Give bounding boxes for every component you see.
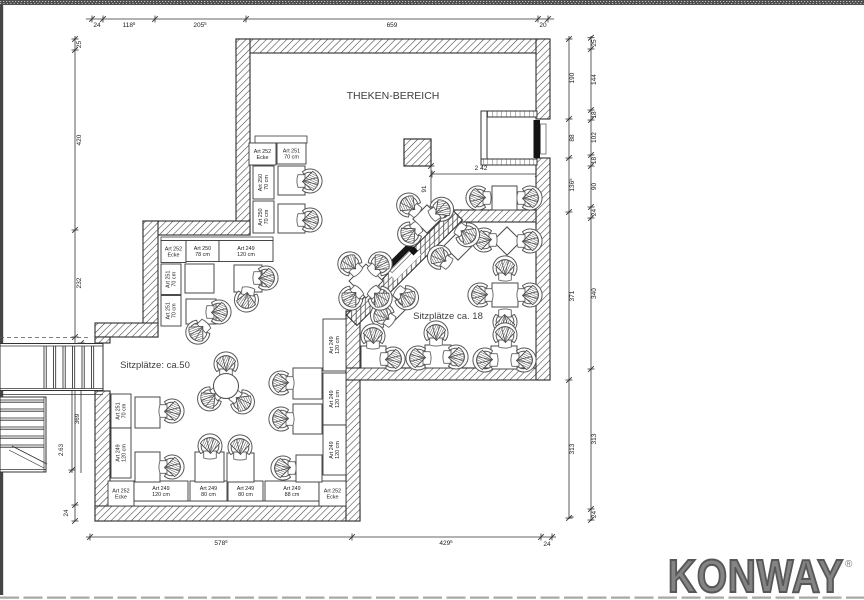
svg-text:25: 25 xyxy=(591,39,598,47)
svg-text:88 cm: 88 cm xyxy=(285,492,300,498)
svg-text:120 cm: 120 cm xyxy=(152,492,170,498)
svg-text:Art 249: Art 249 xyxy=(237,486,254,492)
svg-text:313: 313 xyxy=(591,433,598,444)
svg-text:Ecke: Ecke xyxy=(168,253,180,259)
svg-text:313: 313 xyxy=(569,443,576,454)
svg-text:24: 24 xyxy=(591,511,598,519)
svg-text:80 cm: 80 cm xyxy=(201,492,216,498)
svg-text:Art 252: Art 252 xyxy=(254,149,271,155)
svg-text:90: 90 xyxy=(591,183,598,191)
svg-text:Art 249: Art 249 xyxy=(152,486,169,492)
svg-text:78 cm: 78 cm xyxy=(195,252,210,258)
svg-text:2.63: 2.63 xyxy=(58,443,65,456)
svg-text:Sitzplätze: ca.50: Sitzplätze: ca.50 xyxy=(120,360,190,371)
svg-text:6: 6 xyxy=(570,515,576,518)
svg-text:Art 252: Art 252 xyxy=(112,488,129,494)
svg-text:24: 24 xyxy=(543,541,551,548)
svg-text:70 cm: 70 cm xyxy=(171,271,177,286)
svg-text:91: 91 xyxy=(421,185,428,192)
svg-text:371: 371 xyxy=(569,290,576,301)
svg-text:340: 340 xyxy=(591,288,598,299)
svg-text:659: 659 xyxy=(387,22,398,29)
svg-text:Ecke: Ecke xyxy=(257,155,269,161)
svg-text:Art 251: Art 251 xyxy=(283,148,300,154)
svg-text:Art 249: Art 249 xyxy=(283,486,300,492)
svg-text:24: 24 xyxy=(591,209,598,217)
svg-text:®: ® xyxy=(845,559,853,570)
svg-text:KONWAY: KONWAY xyxy=(668,550,844,600)
svg-text:420: 420 xyxy=(76,134,83,145)
svg-text:Art 252: Art 252 xyxy=(324,488,341,494)
svg-text:144: 144 xyxy=(591,74,598,85)
svg-text:120 cm: 120 cm xyxy=(335,441,341,459)
svg-text:20: 20 xyxy=(539,22,547,29)
svg-text:25: 25 xyxy=(76,41,83,49)
svg-text:Art 250: Art 250 xyxy=(194,246,211,252)
svg-text:Sitzplätze ca. 18: Sitzplätze ca. 18 xyxy=(413,311,483,322)
svg-text:24: 24 xyxy=(63,509,70,517)
svg-text:Art 252: Art 252 xyxy=(165,246,182,252)
svg-text:THEKEN-BEREICH: THEKEN-BEREICH xyxy=(347,90,440,102)
svg-text:190: 190 xyxy=(569,72,576,83)
svg-text:Ecke: Ecke xyxy=(327,495,339,501)
svg-text:102: 102 xyxy=(591,132,598,143)
svg-text:24: 24 xyxy=(93,22,101,29)
svg-text:2 42: 2 42 xyxy=(475,165,488,172)
svg-text:Art 249: Art 249 xyxy=(237,246,254,252)
svg-text:120 cm: 120 cm xyxy=(121,444,127,462)
svg-text:Art 249: Art 249 xyxy=(200,486,217,492)
svg-text:70 cm: 70 cm xyxy=(264,209,270,224)
svg-text:70 cm: 70 cm xyxy=(284,155,299,161)
svg-text:18: 18 xyxy=(591,157,598,165)
svg-text:232: 232 xyxy=(76,277,83,288)
svg-text:120 cm: 120 cm xyxy=(237,252,255,258)
svg-text:18: 18 xyxy=(591,111,598,119)
svg-text:Ecke: Ecke xyxy=(115,495,127,501)
svg-text:70 cm: 70 cm xyxy=(264,175,270,190)
svg-text:88: 88 xyxy=(569,134,576,142)
svg-text:120 cm: 120 cm xyxy=(335,390,341,408)
svg-text:120 cm: 120 cm xyxy=(335,336,341,354)
svg-text:70 cm: 70 cm xyxy=(171,303,177,318)
svg-text:369: 369 xyxy=(74,413,81,424)
svg-text:80 cm: 80 cm xyxy=(238,492,253,498)
svg-text:70 cm: 70 cm xyxy=(121,403,127,418)
